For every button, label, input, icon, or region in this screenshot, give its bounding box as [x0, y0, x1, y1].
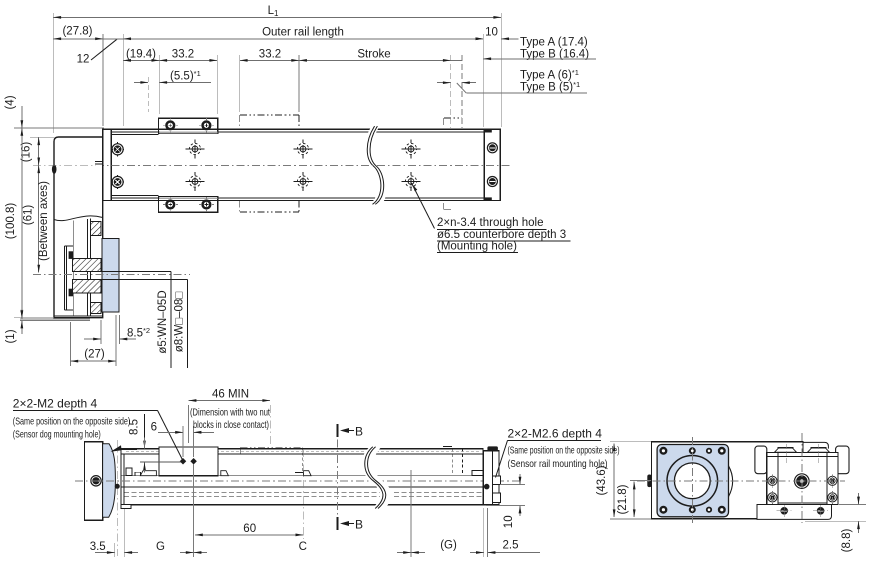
svg-text:(43.6): (43.6) — [596, 465, 608, 495]
svg-text:ø6.5 counterbore depth 3: ø6.5 counterbore depth 3 — [437, 229, 566, 241]
svg-text:ø8:W□–08□: ø8:W□–08□ — [174, 292, 186, 353]
svg-text:Type A (6)*1: Type A (6)*1 — [520, 68, 579, 82]
svg-text:(Sensor dog mounting hole): (Sensor dog mounting hole) — [13, 429, 101, 441]
svg-text:2.5: 2.5 — [503, 540, 519, 552]
svg-text:C: C — [299, 541, 307, 553]
svg-text:(100.8): (100.8) — [5, 203, 17, 240]
svg-text:(Same position on the opposite: (Same position on the opposite side) — [508, 445, 620, 457]
svg-text:33.2: 33.2 — [259, 49, 281, 61]
svg-text:2×2-M2 depth 4: 2×2-M2 depth 4 — [13, 397, 98, 411]
svg-text:3.5: 3.5 — [90, 541, 106, 553]
svg-text:Stroke: Stroke — [357, 49, 390, 61]
svg-text:B: B — [355, 518, 363, 532]
svg-text:Type B (5)*1: Type B (5)*1 — [520, 80, 580, 94]
svg-text:2×2-M2.6 depth 4: 2×2-M2.6 depth 4 — [508, 427, 603, 441]
svg-text:10: 10 — [503, 515, 515, 528]
svg-text:2×n-3.4 through hole: 2×n-3.4 through hole — [437, 217, 543, 229]
svg-text:B: B — [355, 425, 363, 439]
svg-text:(4): (4) — [5, 95, 17, 109]
svg-text:(Dimension with two nut: (Dimension with two nut — [190, 407, 270, 419]
svg-text:33.2: 33.2 — [172, 49, 194, 61]
svg-text:12: 12 — [77, 54, 90, 66]
svg-text:(1): (1) — [5, 329, 17, 343]
svg-text:(21.8): (21.8) — [617, 484, 629, 514]
svg-text:(61): (61) — [23, 205, 35, 226]
svg-text:(27.8): (27.8) — [62, 26, 92, 38]
svg-text:Outer rail length: Outer rail length — [262, 27, 344, 39]
svg-text:60: 60 — [243, 523, 256, 535]
svg-text:(27): (27) — [84, 349, 105, 361]
svg-text:(Same position on the opposite: (Same position on the opposite side) — [13, 416, 131, 428]
svg-text:Type A (17.4): Type A (17.4) — [520, 37, 588, 49]
svg-text:(19.4): (19.4) — [126, 49, 156, 61]
svg-text:(8.8): (8.8) — [841, 529, 853, 553]
svg-text:6: 6 — [151, 422, 157, 434]
svg-text:(Between axes): (Between axes) — [38, 181, 50, 261]
svg-text:G: G — [156, 541, 165, 553]
svg-text:ø5:WN–05D: ø5:WN–05D — [157, 290, 169, 353]
svg-text:10: 10 — [485, 27, 498, 39]
svg-text:(Mounting hole): (Mounting hole) — [437, 241, 517, 253]
svg-text:(Sensor rail mounting hole): (Sensor rail mounting hole) — [508, 458, 608, 470]
svg-text:46 MIN: 46 MIN — [212, 389, 249, 401]
svg-text:blocks in close contact): blocks in close contact) — [193, 419, 269, 431]
svg-text:8.5: 8.5 — [129, 419, 141, 435]
svg-text:(G): (G) — [440, 540, 457, 552]
